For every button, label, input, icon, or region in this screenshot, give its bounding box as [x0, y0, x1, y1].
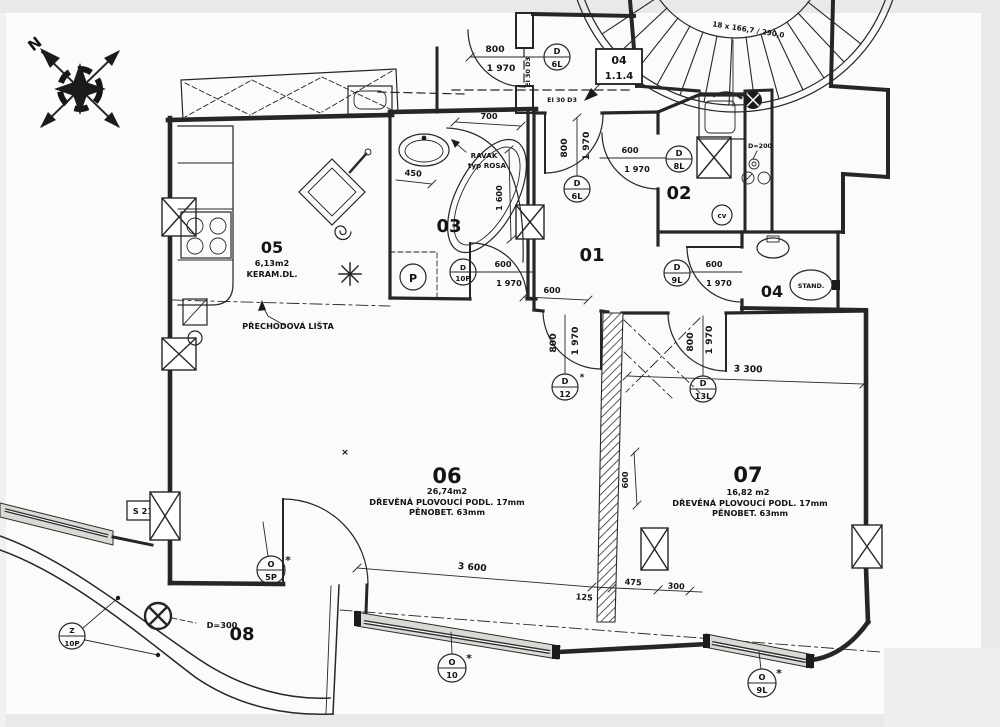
hall-door-dim: 600 [543, 285, 560, 295]
svg-text:6L: 6L [572, 191, 583, 201]
door-mark: * [580, 372, 585, 383]
svg-text:O: O [268, 559, 275, 569]
door-07: 800 1 970 D 13L [668, 313, 726, 402]
svg-text:O: O [449, 657, 456, 667]
transition-strip-label: PŘECHODOVÁ LIŠTA [242, 320, 334, 331]
shaft [697, 137, 731, 178]
svg-text:Z: Z [69, 626, 74, 635]
svg-text:800: 800 [548, 333, 559, 352]
svg-text:600: 600 [494, 259, 511, 269]
svg-text:O: O [759, 672, 766, 682]
svg-text:D: D [574, 178, 581, 188]
dim-300: 300 [667, 581, 685, 592]
door-tag: D 6L [544, 44, 570, 70]
svg-text:9L: 9L [672, 275, 683, 285]
floor-plan-page: N 18 x 166,7 / 290,0 04 1.1.4 EI 30 D3 E… [0, 0, 1000, 727]
room-03-number: 03 [436, 216, 461, 237]
drain-symbol [145, 603, 196, 629]
compass-north-arrowhead [40, 48, 60, 68]
room-08-number: 08 [229, 624, 254, 645]
dim-3300: 3 300 [734, 364, 763, 376]
dishwasher-symbol [339, 263, 361, 285]
room-05-floor: KERAM.DL. [247, 269, 298, 279]
svg-text:1 970: 1 970 [704, 326, 715, 355]
railing-tag-z10p: Z 10P [59, 596, 160, 657]
door-tag: D 12 * [552, 372, 585, 400]
column [150, 492, 180, 540]
svg-text:D: D [554, 46, 561, 56]
door-tag: D 6L [564, 176, 590, 202]
unit-number: 04 [611, 54, 627, 67]
door-03: 600 1 970 D 10P [450, 243, 533, 298]
fire-rating-horizontal: EI 30 D3 [547, 96, 577, 104]
svg-text:1 970: 1 970 [706, 278, 732, 288]
door-entrance: 800 1 970 D 6L [466, 30, 570, 87]
unit-code: 1.1.4 [605, 71, 634, 82]
cross-mark: × [341, 447, 349, 458]
tub-dim: 1 600 [494, 185, 504, 211]
door-tag: D 8L [666, 146, 692, 172]
svg-text:D: D [460, 263, 466, 272]
door-tag: D 9L [664, 260, 690, 286]
door-hall: 800 1 970 D 6L [545, 114, 603, 202]
washbasin-icon [399, 134, 449, 166]
window-mark: * [285, 554, 291, 567]
column [641, 528, 668, 570]
svg-text:800: 800 [485, 44, 504, 55]
fire-rating-vertical: EI 30 D3 [524, 57, 532, 87]
unit-id-box: 04 1.1.4 [584, 49, 642, 101]
room-06-floor1: DŘEVĚNÁ PLOVOUCÍ PODL. 17mm [369, 496, 524, 507]
basin-dim: 450 [404, 167, 422, 178]
svg-text:5P: 5P [265, 572, 277, 582]
svg-text:1 970: 1 970 [487, 63, 516, 74]
svg-text:800: 800 [685, 332, 696, 351]
toilet-icon: STAND. [790, 270, 840, 300]
wc: STAND. 04 [757, 236, 840, 301]
window-mark: * [466, 652, 472, 665]
door-tag: D 10P [450, 259, 476, 285]
window-mark: * [776, 667, 782, 680]
svg-text:STAND.: STAND. [798, 282, 825, 290]
vent-pipe-icon [744, 91, 762, 109]
fridge-spiral-icon [335, 226, 351, 240]
room-07-number: 07 [733, 463, 762, 487]
svg-text:cv: cv [718, 211, 727, 220]
svg-text:12: 12 [559, 389, 570, 399]
svg-text:600: 600 [621, 145, 638, 155]
door-02: 600 1 970 D 8L [600, 133, 692, 189]
window-tag-o5p: O 5P * [257, 522, 291, 584]
room-06-area: 26,74m2 [427, 486, 467, 496]
room-02-number: 02 [666, 183, 691, 204]
svg-text:6L: 6L [552, 59, 563, 69]
room-06-floor2: PĚNOBET. 63mm [409, 506, 485, 517]
entry-width-dim: 700 [480, 111, 497, 121]
room-07-area: 16,82 m2 [727, 487, 770, 497]
washing-machine-icon: P [390, 252, 437, 299]
room-06-number: 06 [432, 464, 461, 488]
dim-3600: 3 600 [457, 561, 487, 574]
door-06: 800 1 970 D 12 * [543, 311, 601, 400]
dim-125: 125 [575, 591, 593, 602]
svg-text:800: 800 [559, 138, 570, 157]
svg-text:10P: 10P [455, 274, 470, 283]
room-07-floor1: DŘEVĚNÁ PLOVOUCÍ PODL. 17mm [672, 497, 827, 508]
svg-text:10P: 10P [64, 639, 79, 648]
wc-basin-icon [757, 236, 789, 258]
column [852, 525, 882, 568]
svg-text:D: D [700, 378, 707, 388]
door-04: 600 1 970 D 9L [664, 247, 742, 302]
svg-text:P: P [409, 272, 417, 285]
svg-text:D: D [674, 262, 681, 272]
svg-text:600: 600 [705, 259, 722, 269]
column [162, 198, 196, 236]
tub-brand-label: RAVAK [471, 151, 498, 160]
room-04-number: 04 [761, 282, 783, 301]
svg-text:D: D [676, 148, 683, 158]
floor-plan-canvas: N 18 x 166,7 / 290,0 04 1.1.4 EI 30 D3 E… [0, 0, 1000, 727]
room-07-floor2: PĚNOBET. 63mm [712, 507, 788, 518]
svg-text:1 970: 1 970 [570, 327, 581, 356]
tub-model-label: typ ROSA [468, 161, 507, 170]
svg-text:D: D [562, 376, 569, 386]
column [162, 338, 196, 370]
bathtub-icon [431, 127, 542, 265]
door-tag: D 13L [690, 376, 716, 402]
room-05-number: 05 [261, 238, 283, 257]
dim-600-wall: 600 [620, 471, 630, 488]
corner-sink-icon [299, 149, 371, 225]
svg-text:10: 10 [446, 670, 458, 680]
room-05-area: 6,13m2 [255, 258, 289, 268]
bedroom: 07 16,82 m2 DŘEVĚNÁ PLOVOUCÍ PODL. 17mm … [620, 318, 868, 518]
pipe-200-label: D=200 [748, 142, 773, 150]
walls [168, 13, 888, 660]
sink-unit-icon [699, 92, 745, 139]
svg-text:9L: 9L [757, 685, 768, 695]
svg-text:1 970: 1 970 [496, 278, 522, 288]
boiler-tag: cv [712, 205, 732, 225]
living-room: 06 26,74m2 DŘEVĚNÁ PLOVOUCÍ PODL. 17mm P… [341, 447, 702, 603]
room-01-number: 01 [579, 245, 604, 266]
svg-text:13L: 13L [695, 391, 712, 401]
dim-475: 475 [624, 577, 642, 588]
door-balcony [283, 499, 368, 584]
svg-text:1 970: 1 970 [624, 164, 650, 174]
kitchen: 05 6,13m2 KERAM.DL. PŘECHODOVÁ LIŠTA [172, 126, 390, 345]
facade-windows [0, 503, 880, 668]
svg-text:1 970: 1 970 [581, 132, 592, 161]
compass-rose: N [24, 33, 120, 128]
svg-text:8L: 8L [674, 161, 685, 171]
